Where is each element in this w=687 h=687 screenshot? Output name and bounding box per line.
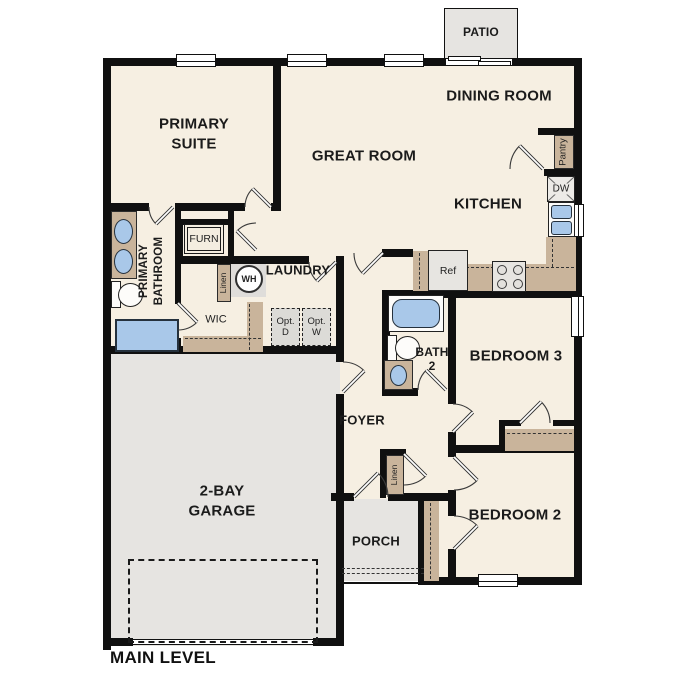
- refrigerator-label: Ref: [440, 265, 456, 277]
- floor-plan: Opt. D Opt. W DW: [0, 0, 687, 687]
- wall-suite-divider: [273, 58, 281, 208]
- kitchen-label: KITCHEN: [454, 194, 522, 214]
- pantry-label: Pantry: [559, 138, 570, 165]
- patio-slider-panel-1: [448, 56, 481, 61]
- bedroom3-label: BEDROOM 3: [470, 346, 563, 366]
- dishwasher-label: DW: [552, 184, 571, 195]
- wall-bottom-right: [516, 577, 582, 585]
- linen-bedroom-label: Linen: [390, 465, 400, 486]
- foyer-label: FOYER: [339, 413, 385, 430]
- wall-bedroom2-west-1: [448, 490, 456, 516]
- bed2-closet-shelf: [424, 501, 439, 581]
- bath2-label: BATH 2: [415, 346, 448, 374]
- stove-burner-1: [497, 265, 507, 275]
- optional-washer-label: Opt. W: [308, 316, 326, 339]
- wall-left: [103, 58, 111, 650]
- window-primary-suite: [176, 54, 216, 67]
- wall-garage-east-2: [336, 394, 344, 646]
- great-room-label: GREAT ROOM: [312, 146, 416, 166]
- furnace-label: FURN: [189, 233, 218, 245]
- bedroom2-label: BEDROOM 2: [469, 505, 562, 525]
- kitchen-closet-strip: [413, 251, 428, 291]
- patio-slider-panel-2: [478, 61, 511, 66]
- primary-sink-1: [114, 219, 133, 244]
- wall-furn-left: [177, 219, 183, 258]
- wall-bedroom3-west-1: [448, 290, 456, 404]
- window-bedroom2: [478, 574, 518, 587]
- water-heater-label: WH: [242, 274, 257, 284]
- porch-edge-line: [337, 582, 424, 584]
- linen-primary-label: Linen: [219, 273, 229, 294]
- stove-burner-2: [513, 265, 523, 275]
- patio-label: PATIO: [463, 26, 499, 40]
- porch-step-dash-1: [342, 568, 424, 569]
- garage-label: 2-BAY GARAGE: [188, 482, 255, 521]
- wic-label: WIC: [205, 314, 226, 327]
- laundry-label: LAUNDRY: [266, 263, 330, 280]
- bath2-sink: [390, 365, 407, 386]
- porch-step-dash-2: [342, 573, 424, 574]
- window-great-room: [287, 54, 327, 67]
- dishwasher-box: DW: [547, 176, 575, 202]
- window-dining: [384, 54, 424, 67]
- wall-bed3-closet-top-2: [553, 420, 574, 426]
- stove-burner-3: [497, 279, 507, 289]
- kitchen-sink-basin-2: [551, 221, 572, 235]
- wall-pantry-bottom: [544, 169, 582, 176]
- optional-washer-box: Opt. W: [302, 308, 331, 346]
- primary-suite-label: PRIMARY SUITE: [159, 115, 229, 154]
- dining-room-label: DINING ROOM: [446, 86, 552, 106]
- optional-dryer-label: Opt. D: [277, 316, 295, 339]
- wall-suite-south-2: [175, 203, 245, 211]
- wall-kitchen-hall-stub: [382, 249, 413, 257]
- counter-dash-v: [552, 239, 553, 267]
- wall-garage-east-1: [336, 354, 344, 362]
- wall-corridor-west: [228, 211, 234, 260]
- optional-dryer-box: Opt. D: [271, 308, 300, 346]
- bed3-closet-dash: [507, 433, 572, 434]
- wic-shelf-dash-v: [249, 304, 250, 350]
- kitchen-sink-basin-1: [551, 205, 572, 219]
- counter-vertical: [546, 237, 576, 265]
- garage-door-dashed: [128, 559, 318, 643]
- wall-pantry-top: [538, 128, 582, 135]
- stove-burner-4: [513, 279, 523, 289]
- porch-label: PORCH: [352, 534, 400, 551]
- primary-bathroom-label: PRIMARY BATHROOM: [137, 237, 167, 305]
- primary-shower: [115, 319, 179, 352]
- bed2-closet-dash: [430, 503, 431, 579]
- window-bedroom3: [571, 296, 584, 337]
- level-title: MAIN LEVEL: [110, 648, 216, 668]
- wall-suite-south-3: [271, 203, 281, 211]
- primary-sink-2: [114, 249, 133, 274]
- wall-suite-south-1: [103, 203, 149, 211]
- bath2-tub: [392, 299, 440, 328]
- wall-porch-north: [331, 493, 354, 501]
- kitchen-closet-dash: [419, 253, 420, 289]
